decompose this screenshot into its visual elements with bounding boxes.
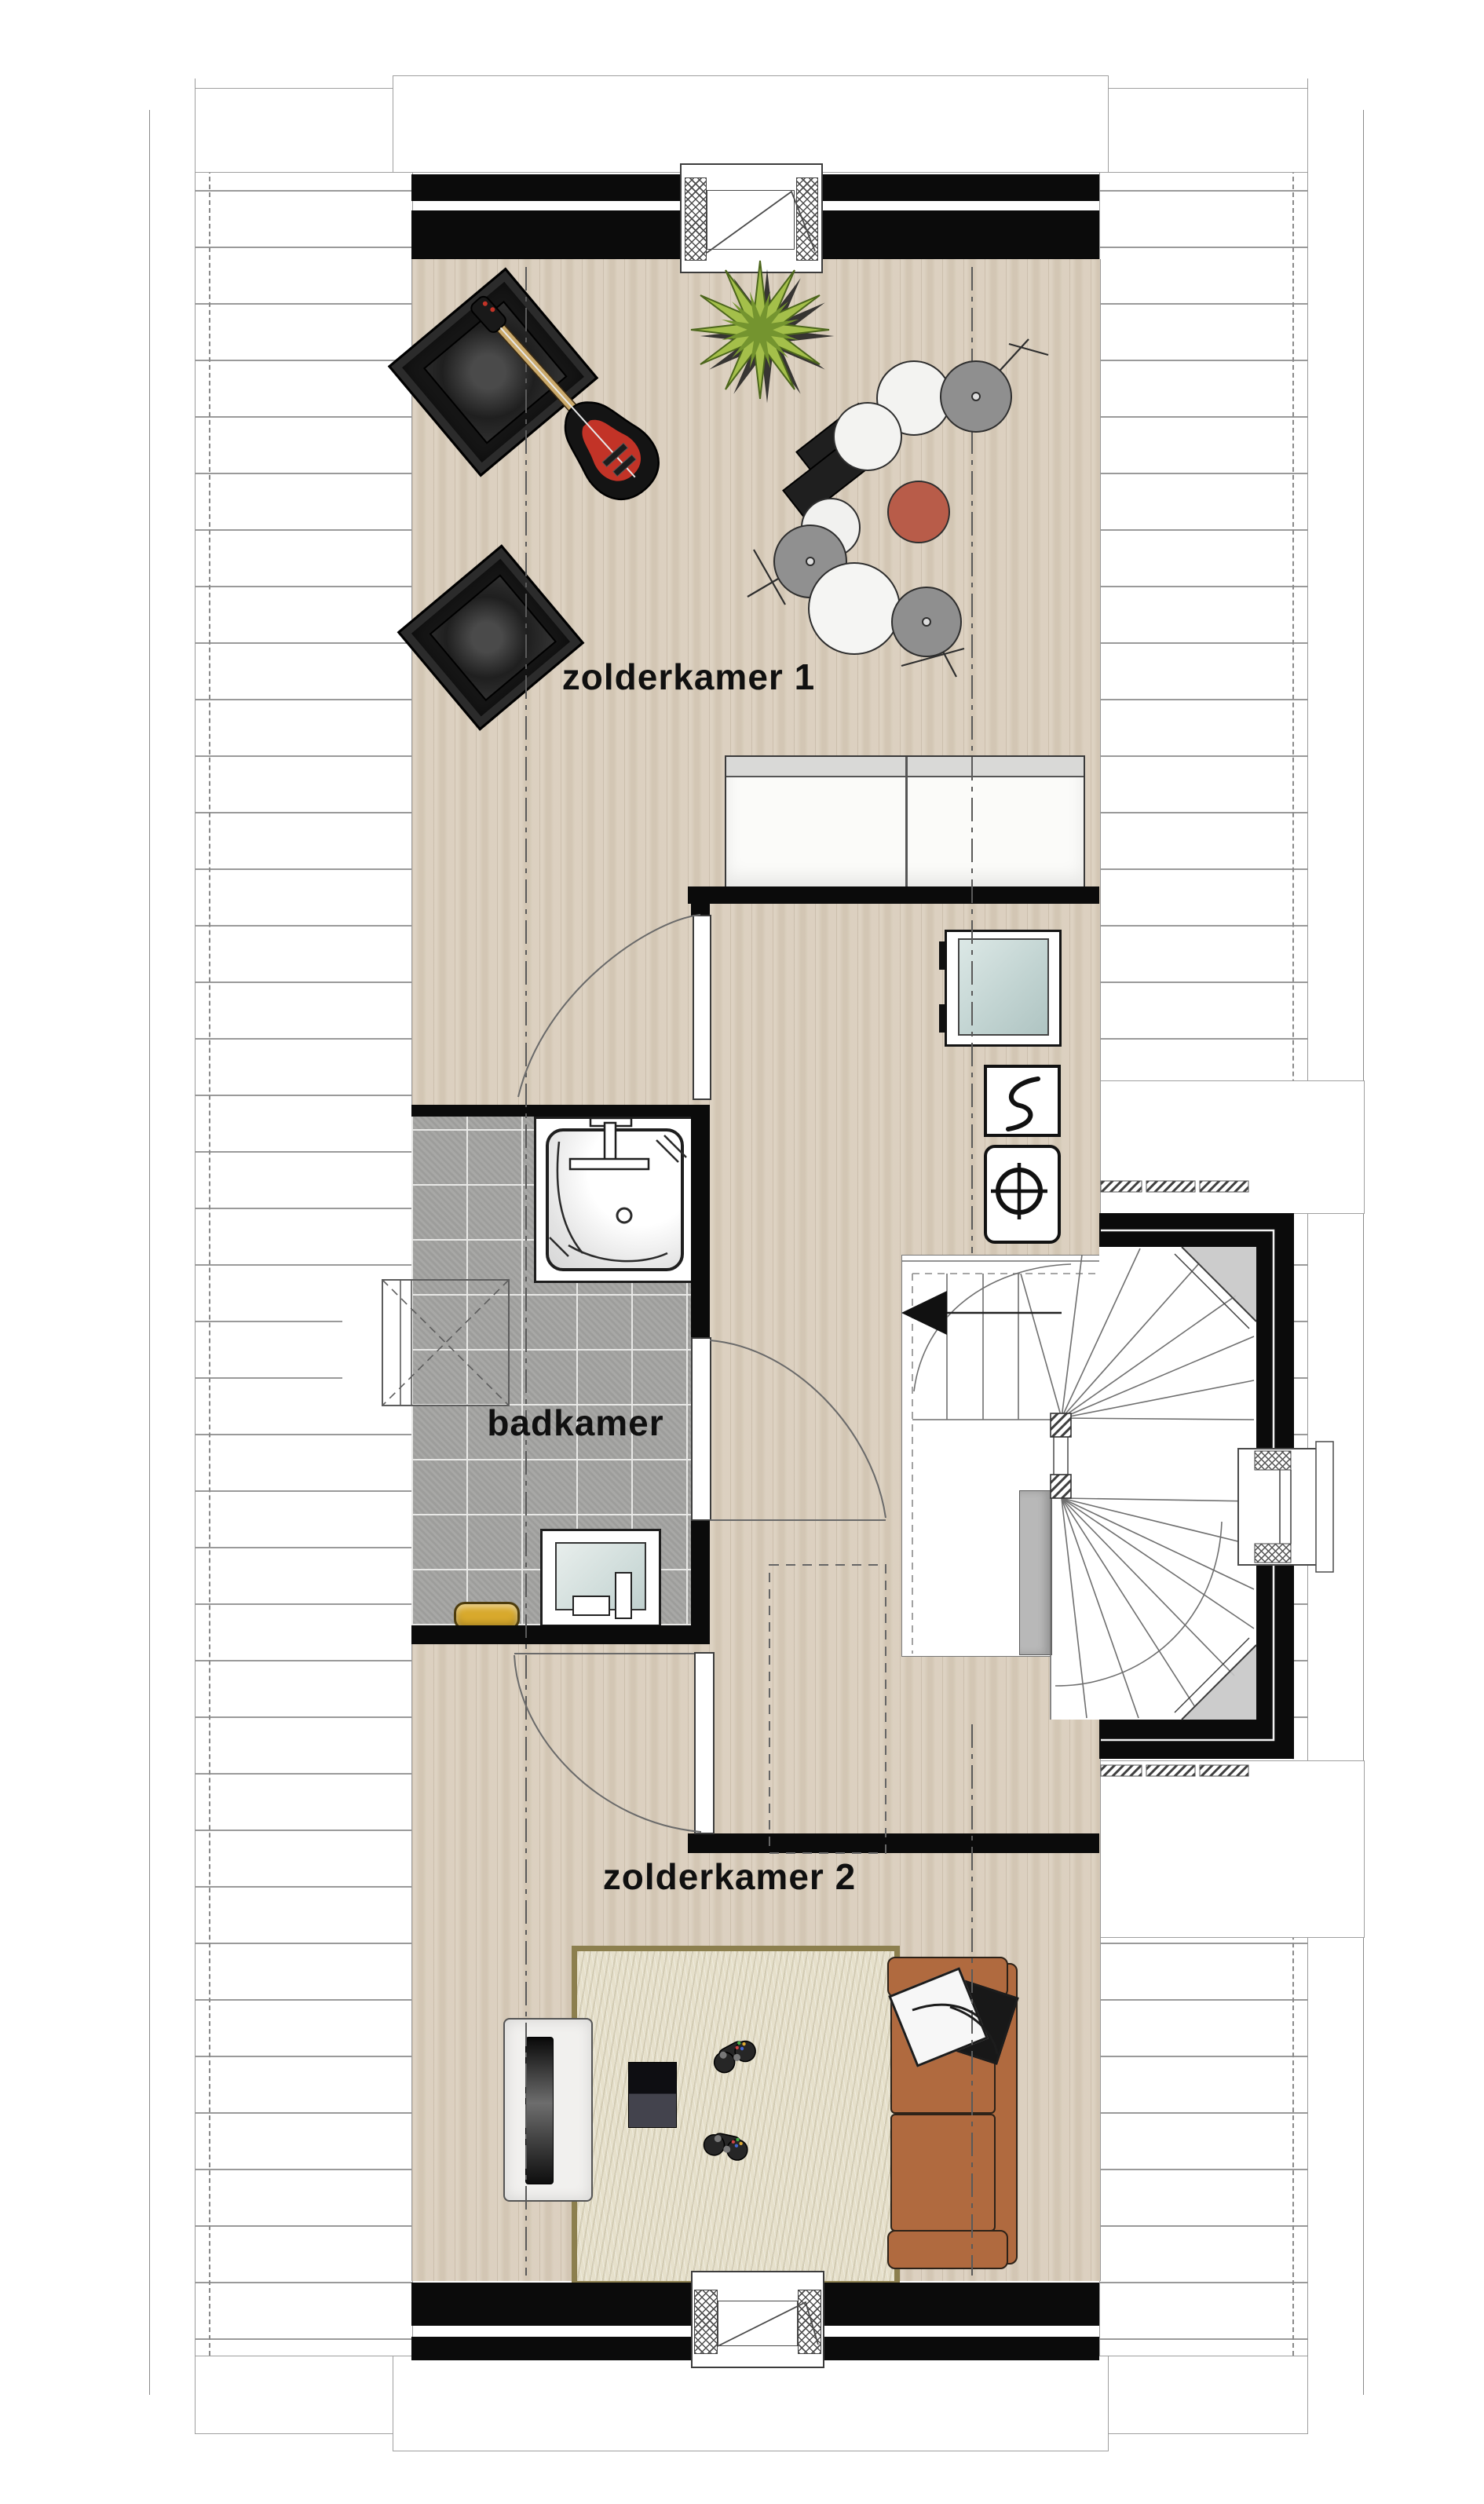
window-top-jamb-left (685, 177, 707, 261)
wall-bathroom-bottom (411, 1625, 710, 1644)
washbasin (540, 1529, 661, 1627)
wardrobe (725, 755, 1085, 890)
tv-cabinet (503, 2018, 593, 2202)
stairwell (901, 1255, 1101, 1657)
room1-label: zolderkamer 1 (562, 656, 815, 698)
top-gable-overhang (393, 75, 1109, 173)
door-room1-leaf (693, 915, 711, 1100)
tv (525, 2037, 554, 2184)
window-top-frame (707, 190, 795, 250)
washing-machine-hinge (939, 941, 947, 970)
speaker-cone-icon (424, 302, 567, 444)
boiler-unit (984, 1145, 1061, 1244)
bay-top-eaves-box (1099, 1080, 1365, 1214)
bay-bottom-eaves-box (1099, 1760, 1365, 1938)
wall-top-outer-left (411, 174, 680, 201)
wardrobe-door-divider (905, 757, 908, 888)
rug (572, 1946, 900, 2286)
wall-bottom-inner-right (823, 2283, 1099, 2326)
bathroom-label: badkamer (487, 1402, 663, 1444)
roof-window-backing (342, 1272, 411, 1413)
speaker-cone-icon (429, 575, 557, 701)
room2-label: zolderkamer 2 (603, 1855, 856, 1898)
wall-bottom-outer-right (823, 2337, 1099, 2360)
washing-machine-hinge (939, 1004, 947, 1033)
sofa-armrest-bottom (887, 2230, 1008, 2269)
wall-bottom-inner-left (411, 2283, 691, 2326)
mechanical-ventilation-unit (984, 1065, 1061, 1137)
door-bathroom-leaf (691, 1337, 711, 1521)
wall-bathroom-right-upper (691, 1117, 710, 1337)
window-bottom (691, 2271, 824, 2368)
left-roof-plane (195, 79, 413, 2429)
left-roof-dashed-line (209, 90, 210, 2418)
washing-machine (945, 930, 1062, 1047)
wall-hall-room2 (688, 1833, 1099, 1853)
right-eaves-line (1363, 110, 1364, 2395)
washbasin-soap-tray (572, 1596, 610, 1616)
window-bottom-jamb-left (694, 2290, 718, 2354)
left-eaves-line (149, 110, 150, 2395)
stair-lower-flight-area (1051, 1655, 1099, 1720)
wall-top-inner-right (817, 210, 1099, 259)
bottom-gable-overhang (393, 2356, 1109, 2451)
wall-bottom-outer-left (411, 2337, 691, 2360)
washbasin-faucet (615, 1572, 632, 1619)
window-top (680, 163, 823, 273)
shower-tray (546, 1128, 684, 1271)
right-roof-dashed-line (1292, 90, 1294, 2418)
attic-floor-plan: zolderkamer 1 badkamer zolderkamer 2 (0, 0, 1484, 2504)
wall-bathroom-right-lower (691, 1518, 710, 1628)
wall-top-outer-right (817, 174, 1099, 201)
door-room2-leaf (694, 1652, 715, 1834)
sofa-seat-cushion (890, 2114, 996, 2232)
washing-machine-glass-top (958, 938, 1049, 1036)
window-bottom-frame (718, 2301, 798, 2346)
shower (534, 1117, 696, 1283)
bay-interior (1099, 1247, 1256, 1720)
game-console (628, 2062, 677, 2128)
window-bottom-jamb-right (798, 2290, 821, 2354)
wall-bathroom-top (411, 1105, 710, 1117)
wall-top-inner-left (411, 210, 680, 259)
stair-railing (1019, 1490, 1052, 1655)
wall-room1-hall (688, 886, 1099, 904)
window-top-jamb-right (796, 177, 818, 261)
